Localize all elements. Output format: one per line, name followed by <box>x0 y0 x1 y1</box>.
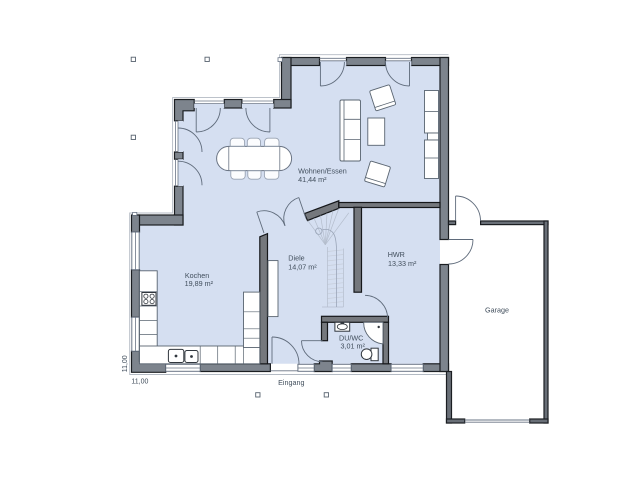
svg-text:3,01 m²: 3,01 m² <box>341 341 366 350</box>
svg-text:13,33 m²: 13,33 m² <box>388 259 417 268</box>
svg-text:Eingang: Eingang <box>278 378 304 387</box>
svg-text:Diele: Diele <box>288 253 304 262</box>
svg-text:Garage: Garage <box>485 306 509 315</box>
svg-text:19,89 m²: 19,89 m² <box>185 279 214 288</box>
svg-text:11,00: 11,00 <box>122 355 129 372</box>
svg-text:41,44 m²: 41,44 m² <box>298 175 327 184</box>
svg-text:11,00: 11,00 <box>131 378 148 385</box>
svg-text:HWR: HWR <box>388 250 405 259</box>
svg-text:14,07 m²: 14,07 m² <box>288 263 317 272</box>
